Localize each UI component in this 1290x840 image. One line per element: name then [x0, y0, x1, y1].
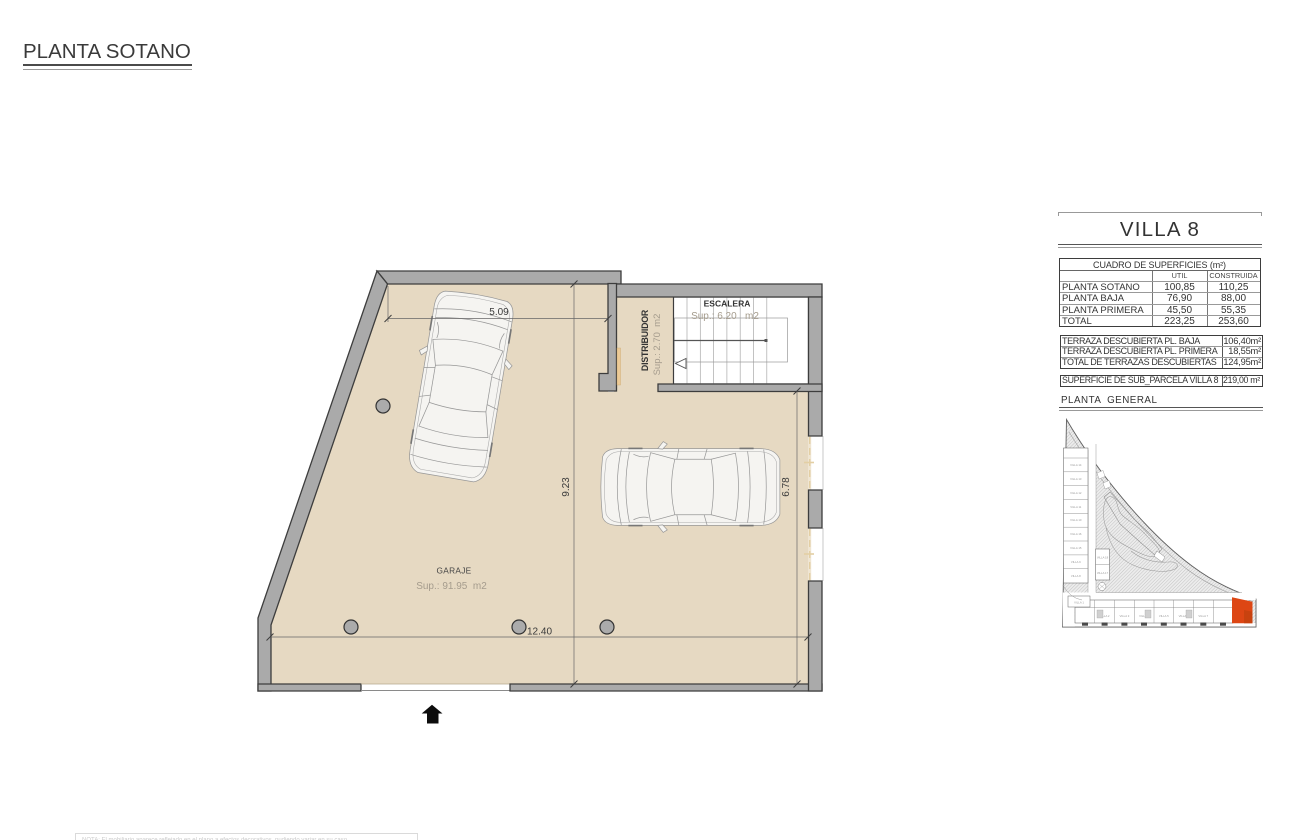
svg-text:VILLA 7: VILLA 7 — [1198, 614, 1208, 618]
svg-text:DISTRIBUIDOR: DISTRIBUIDOR — [640, 309, 650, 371]
svg-text:VILLA 18: VILLA 18 — [1097, 556, 1109, 560]
svg-text:Sup.: 6.20 m2: Sup.: 6.20 m2 — [691, 311, 759, 322]
svg-text:5.09: 5.09 — [489, 307, 509, 318]
svg-text:VILLA 15: VILLA 15 — [1070, 546, 1082, 550]
svg-text:12.40: 12.40 — [527, 627, 552, 638]
svg-text:ESCALERA: ESCALERA — [704, 299, 751, 309]
svg-text:VILLA 12: VILLA 12 — [1070, 491, 1082, 495]
svg-text:VILLA 1: VILLA 1 — [1074, 601, 1084, 605]
svg-text:Sup.: 91.95 m2: Sup.: 91.95 m2 — [416, 581, 487, 592]
svg-text:GARAJE: GARAJE — [437, 566, 472, 576]
svg-text:VILLA 13: VILLA 13 — [1070, 477, 1082, 481]
svg-text:VILLA 8: VILLA 8 — [1071, 574, 1081, 578]
svg-text:VILLA 3: VILLA 3 — [1119, 614, 1129, 618]
svg-text:9.23: 9.23 — [561, 477, 572, 497]
svg-text:VILLA 5: VILLA 5 — [1159, 614, 1169, 618]
svg-text:6.78: 6.78 — [781, 477, 792, 497]
svg-text:VILLA 14: VILLA 14 — [1070, 463, 1082, 467]
svg-text:VILLA 17: VILLA 17 — [1097, 571, 1109, 575]
svg-text:VILLA 11: VILLA 11 — [1070, 505, 1082, 509]
svg-text:VILLA 9: VILLA 9 — [1071, 560, 1081, 564]
svg-text:Sup.: 2.70 m2: Sup.: 2.70 m2 — [652, 314, 663, 376]
svg-text:VILLA 10: VILLA 10 — [1070, 518, 1082, 522]
svg-text:VILLA 16: VILLA 16 — [1070, 532, 1082, 536]
